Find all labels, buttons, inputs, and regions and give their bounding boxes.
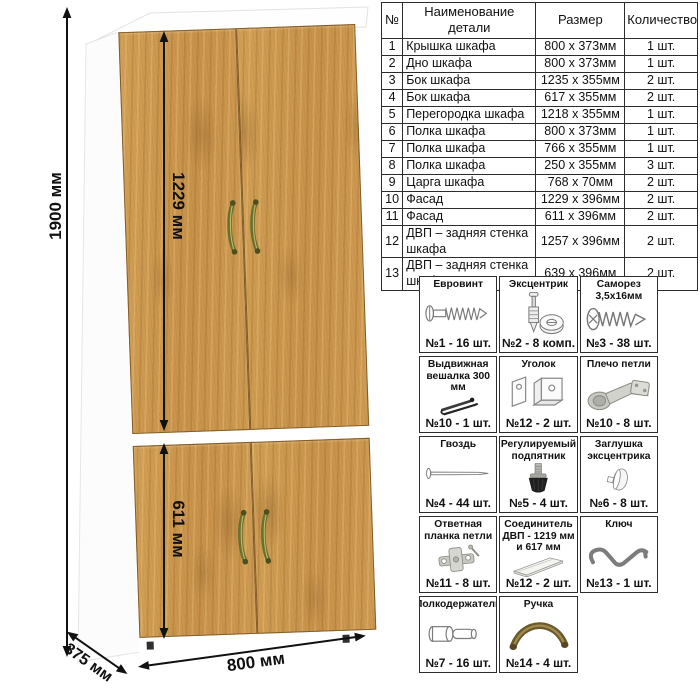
cabinet-foot [147,641,154,649]
cell-size: 1235 x 355мм [536,72,625,89]
cell-qty: 2 шт. [625,72,698,89]
cell-name: Бок шкафа [403,72,536,89]
hardware-item: Плечо петли№10 - 8 шт. [580,356,658,433]
hardware-item-title: Евровинт [433,279,483,291]
parts-table-header-row: №Наименование деталиРазмерКоличество [382,3,698,39]
assembly-sheet: 1900 мм 1229 мм 611 мм 800 мм 375 мм [0,0,700,700]
allen-key-icon [583,531,655,577]
table-row: 8Полка шкафа250 x 355мм3 шт. [382,157,698,174]
hinge-plate-icon [422,542,494,577]
hardware-item: Соединитель ДВП - 1219 мм и 617 мм№12 - … [499,516,577,593]
cell-qty: 1 шт. [625,106,698,123]
hardware-item-title: Плечо петли [587,359,651,371]
hardware-item: Саморез 3,5х16мм№3 - 38 шт. [580,276,658,353]
cell-size: 800 x 373мм [536,55,625,72]
cell-size: 1257 x 396мм [536,225,625,258]
cell-size: 768 x 70мм [536,174,625,191]
cell-qty: 2 шт. [625,174,698,191]
angle-bracket-icon [502,371,574,417]
hardware-item: Гвоздь№4 - 44 шт. [419,436,497,513]
table-row: 5Перегородка шкафа1218 x 355мм1 шт. [382,106,698,123]
hardware-item-title: Ключ [605,519,632,531]
cell-name: Полка шкафа [403,157,536,174]
hardware-item-title: Эксцентрик [509,279,568,291]
table-row: 7Полка шкафа766 x 355мм1 шт. [382,140,698,157]
table-row: 4Бок шкафа617 x 355мм2 шт. [382,89,698,106]
hardware-item-title: Полкодержатель [419,599,497,611]
cell-qty: 1 шт. [625,140,698,157]
column-header: Количество [625,3,698,39]
hardware-item-count: №10 - 1 шт. [425,417,491,429]
cell-num: 2 [382,55,403,72]
cell-num: 5 [382,106,403,123]
column-header: Размер [536,3,625,39]
hardware-item-count: №4 - 44 шт. [425,497,491,509]
cell-name: Перегородка шкафа [403,106,536,123]
hardware-item-count: №5 - 4 шт. [509,497,568,509]
cell-name: ДВП – задняя стенка шкафа [403,225,536,258]
cell-name: Бок шкафа [403,89,536,106]
door-handle-lower-right [258,507,274,565]
cell-qty: 2 шт. [625,225,698,258]
hardware-item-count: №7 - 16 шт. [425,657,491,669]
cell-size: 250 x 355мм [536,157,625,174]
cell-num: 9 [382,174,403,191]
hardware-item: Уголок№12 - 2 шт. [499,356,577,433]
cell-num: 11 [382,208,403,225]
hardware-item: Ручка№14 - 4 шт. [499,596,577,673]
hardware-item: Эксцентрик№2 - 8 комп. [499,276,577,353]
hardware-item: Полкодержатель№7 - 16 шт. [419,596,497,673]
hardware-item-title: Выдвижная вешалка 300 мм [422,359,494,394]
cell-num: 8 [382,157,403,174]
cell-name: Царга шкафа [403,174,536,191]
hardware-item-count: №1 - 16 шт. [425,337,491,349]
cell-size: 800 x 373мм [536,38,625,55]
upper-facade-dimension-label: 1229 мм [168,166,188,246]
cell-num: 3 [382,72,403,89]
height-dimension-arrow [60,6,74,658]
cell-size: 800 x 373мм [536,123,625,140]
shelf-pin-icon [422,611,494,657]
cell-num: 1 [382,38,403,55]
pullout-hanger-icon [422,394,494,417]
hardware-item-count: №11 - 8 шт. [426,577,491,589]
cell-qty: 3 шт. [625,157,698,174]
cell-name: Дно шкафа [403,55,536,72]
cell-num: 7 [382,140,403,157]
hardware-item-count: №2 - 8 комп. [502,337,575,349]
cell-size: 766 x 355мм [536,140,625,157]
hardware-item-count: №13 - 1 шт. [586,577,652,589]
hardware-item-count: №3 - 38 шт. [586,337,652,349]
hardware-item-title: Гвоздь [440,439,476,451]
cell-size: 1229 x 396мм [536,191,625,208]
hardware-item-title: Заглушка эксцентрика [583,439,655,462]
parts-table-header: №Наименование деталиРазмерКоличество [382,3,698,39]
hardware-item-title: Уголок [521,359,555,371]
hardware-item: Выдвижная вешалка 300 мм№10 - 1 шт. [419,356,497,433]
table-row: 11Фасад611 x 396мм2 шт. [382,208,698,225]
hardware-item-title: Соединитель ДВП - 1219 мм и 617 мм [502,519,574,554]
table-row: 9Царга шкафа768 x 70мм2 шт. [382,174,698,191]
cell-num: 6 [382,123,403,140]
hardware-item-count: №14 - 4 шт. [506,657,572,669]
hinge-arm-icon [583,371,655,417]
lower-facade-dimension-label: 611 мм [168,496,188,562]
cam-cap-icon [583,462,655,497]
hardware-item-title: Регулируемый подпятник [501,439,576,462]
cell-qty: 2 шт. [625,89,698,106]
cell-name: Крышка шкафа [403,38,536,55]
cell-qty: 2 шт. [625,191,698,208]
parts-table-body: 1Крышка шкафа800 x 373мм1 шт.2Дно шкафа8… [382,38,698,290]
hardware-item: Ключ№13 - 1 шт. [580,516,658,593]
hardware-item-title: Саморез 3,5х16мм [583,279,655,302]
cell-qty: 2 шт. [625,208,698,225]
table-row: 10Фасад1229 x 396мм2 шт. [382,191,698,208]
door-handle-upper-right [247,197,263,255]
handle-icon [502,611,574,657]
cell-name: Полка шкафа [403,140,536,157]
nail-icon [422,451,494,497]
table-row: 1Крышка шкафа800 x 373мм1 шт. [382,38,698,55]
hardware-item-count: №10 - 8 шт. [586,417,652,429]
cell-name: Фасад [403,208,536,225]
door-handle-upper-left [224,198,240,256]
table-row: 3Бок шкафа1235 x 355мм2 шт. [382,72,698,89]
hardware-item-title: Ручка [524,599,553,611]
cam-bolt-icon [502,291,574,337]
cell-qty: 1 шт. [625,123,698,140]
cell-num: 4 [382,89,403,106]
table-row: 2Дно шкафа800 x 373мм1 шт. [382,55,698,72]
table-row: 6Полка шкафа800 x 373мм1 шт. [382,123,698,140]
euro-screw-icon [422,291,494,337]
hardware-item: Евровинт№1 - 16 шт. [419,276,497,353]
column-header: № [382,3,403,39]
column-header: Наименование детали [403,3,536,39]
hardware-item-count: №12 - 2 шт. [506,417,572,429]
parts-table: №Наименование деталиРазмерКоличество 1Кр… [381,2,698,291]
cell-num: 13 [382,258,403,291]
hdf-connector-icon [502,554,574,577]
height-dimension-label: 1900 мм [46,160,66,252]
hardware-item-count: №6 - 8 шт. [589,497,648,509]
cell-size: 1218 x 355мм [536,106,625,123]
hardware-item: Ответная планка петли№11 - 8 шт. [419,516,497,593]
cell-qty: 1 шт. [625,55,698,72]
cell-num: 10 [382,191,403,208]
hardware-item: Заглушка эксцентрика№6 - 8 шт. [580,436,658,513]
cell-name: Полка шкафа [403,123,536,140]
cell-size: 611 x 396мм [536,208,625,225]
adjustable-foot-icon [502,462,574,497]
cell-num: 12 [382,225,403,258]
cell-name: Фасад [403,191,536,208]
cell-size: 617 x 355мм [536,89,625,106]
hardware-item-title: Ответная планка петли [422,519,494,542]
small-screw-icon [583,302,655,337]
table-row: 12ДВП – задняя стенка шкафа1257 x 396мм2… [382,225,698,258]
cell-qty: 1 шт. [625,38,698,55]
hardware-item-count: №12 - 2 шт. [506,577,572,589]
hardware-item: Регулируемый подпятник№5 - 4 шт. [499,436,577,513]
hardware-grid: Евровинт№1 - 16 шт.Эксцентрик№2 - 8 комп… [419,276,658,673]
door-handle-lower-left [235,508,251,566]
